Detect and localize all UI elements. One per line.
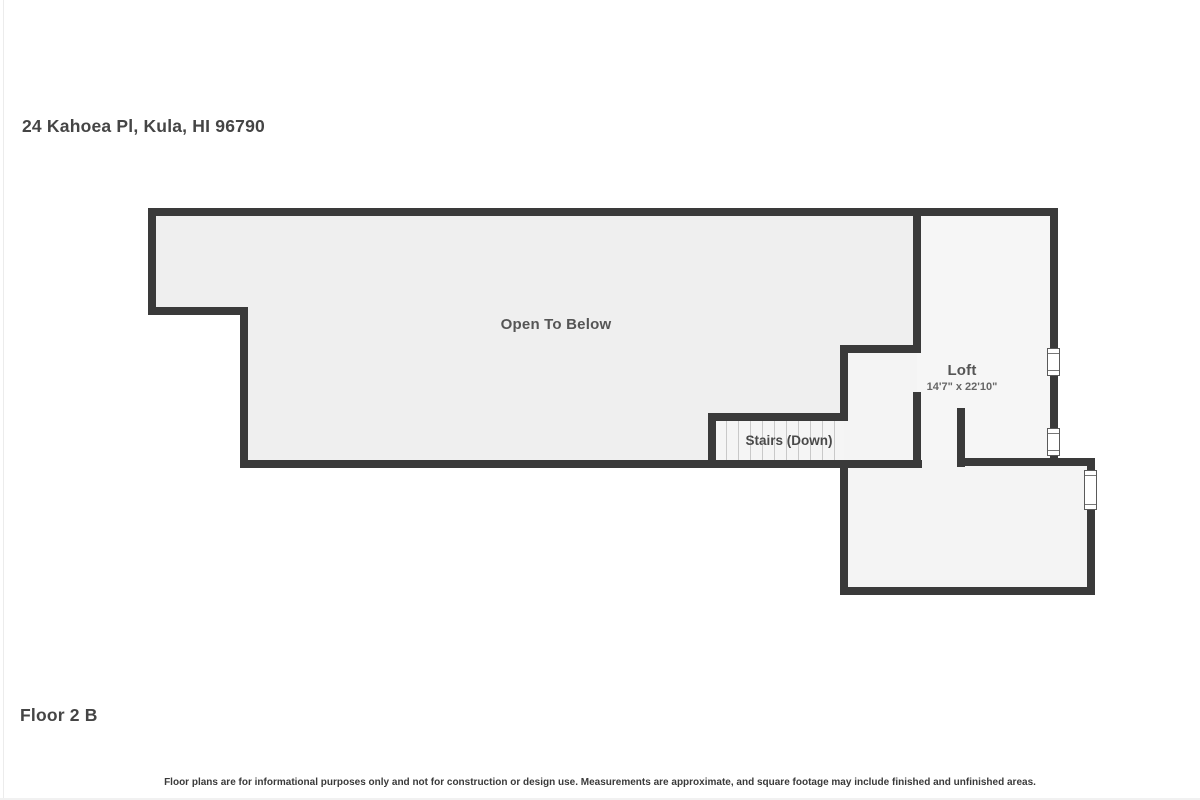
wall-divider-loft (913, 208, 921, 353)
wall-lower-room-left (840, 460, 848, 595)
room-dimensions-loft: 14'7" x 22'10" (882, 381, 1042, 393)
wall-lower-room-bottom (840, 587, 1095, 595)
window-icon (1047, 348, 1060, 376)
wall-stub-left (913, 392, 921, 467)
wall-stairs-top (708, 413, 848, 421)
wall-loft-right-mid (1050, 376, 1058, 428)
wall-lower-room-right-upper (1087, 458, 1095, 470)
wall-hallway-left (840, 345, 848, 421)
floor-plan: Open To Below Loft 14'7" x 22'10" Stairs… (0, 0, 1200, 800)
wall-bottom-main (240, 460, 922, 468)
window-icon (1084, 470, 1097, 510)
wall-top (148, 208, 1058, 216)
wall-hallway-top (840, 345, 921, 353)
floor-notch-mask (140, 315, 240, 480)
wall-left-lower (240, 307, 248, 468)
wall-loft-right-upper (1050, 208, 1058, 348)
disclaimer-text: Floor plans are for informational purpos… (0, 777, 1200, 788)
floor-plan-page: { "header": { "address": "24 Kahoea Pl, … (0, 0, 1200, 800)
floor-lower-room (844, 460, 1091, 591)
floor-loft (917, 212, 1054, 464)
room-label-loft: Loft (882, 362, 1042, 379)
wall-lower-room-right-lower (1087, 510, 1095, 595)
stairs-label: Stairs (Down) (714, 433, 864, 448)
wall-notch (148, 307, 248, 315)
room-label-open-to-below: Open To Below (431, 316, 681, 333)
floor-name-label: Floor 2 B (20, 705, 98, 726)
wall-left-upper (148, 208, 156, 315)
wall-loft-right-lower (1050, 456, 1058, 466)
wall-lower-room-top (957, 458, 1095, 466)
window-icon (1047, 428, 1060, 456)
